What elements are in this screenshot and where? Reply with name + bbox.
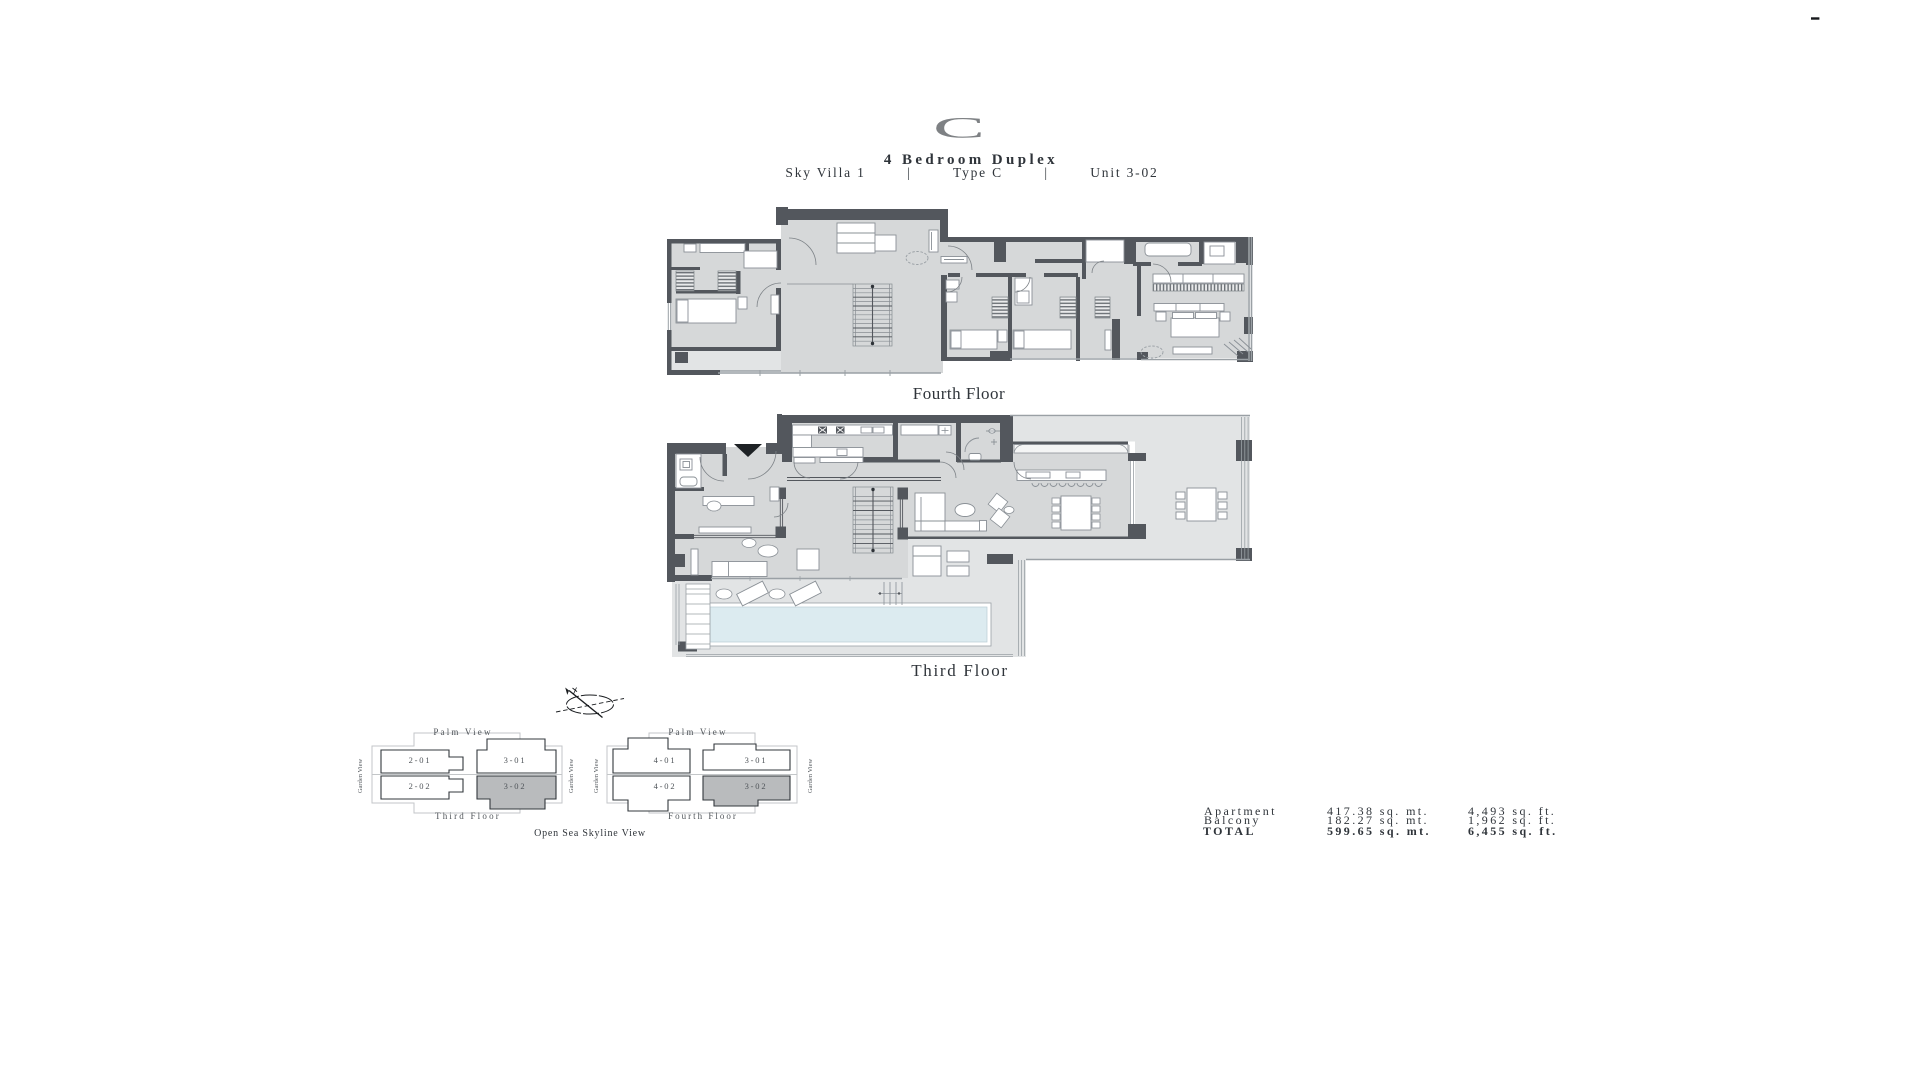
svg-text:Third Floor: Third Floor <box>435 811 501 821</box>
svg-text:Fourth Floor: Fourth Floor <box>668 811 738 821</box>
svg-text:599.65 sq. mt.: 599.65 sq. mt. <box>1327 824 1431 838</box>
svg-text:Garden View: Garden View <box>593 759 600 794</box>
svg-text:Garden View: Garden View <box>357 759 364 794</box>
svg-text:2-01: 2-01 <box>409 755 432 765</box>
svg-text:TOTAL: TOTAL <box>1203 824 1256 838</box>
svg-text:C: C <box>933 111 985 145</box>
svg-text:4-02: 4-02 <box>654 781 677 791</box>
svg-text:3-02: 3-02 <box>745 781 768 791</box>
svg-text:Sky Villa 1 | Ty: Sky Villa 1 | Type C | Unit 3-02 <box>785 165 1158 180</box>
svg-text:Fourth Floor: Fourth Floor <box>913 384 1005 403</box>
svg-text:Third Floor: Third Floor <box>911 661 1009 680</box>
svg-text:Palm View: Palm View <box>433 727 492 737</box>
svg-text:Garden View: Garden View <box>568 759 575 794</box>
svg-text:Open Sea Skyline View: Open Sea Skyline View <box>534 828 646 839</box>
svg-text:Palm View: Palm View <box>668 727 727 737</box>
svg-text:4-01: 4-01 <box>654 755 677 765</box>
svg-text:3-01: 3-01 <box>504 755 527 765</box>
svg-text:2-02: 2-02 <box>409 781 432 791</box>
svg-text:Garden View: Garden View <box>807 759 814 794</box>
svg-text:3-02: 3-02 <box>504 781 527 791</box>
svg-text:3-01: 3-01 <box>745 755 768 765</box>
svg-text:6,455 sq. ft.: 6,455 sq. ft. <box>1468 824 1558 838</box>
